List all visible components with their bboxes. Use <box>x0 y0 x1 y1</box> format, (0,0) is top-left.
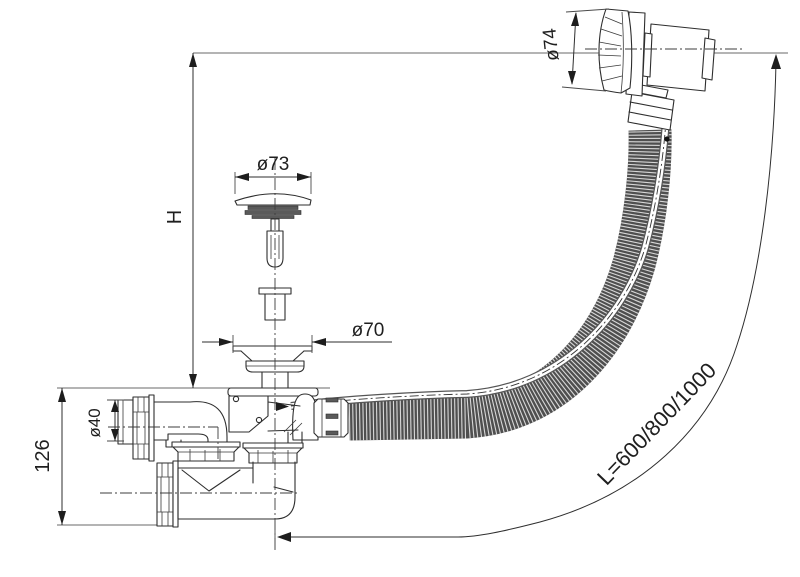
d70-extension-lines <box>233 335 312 353</box>
strainer <box>233 346 312 388</box>
overflow-body <box>647 24 709 91</box>
trap-height-dimension: 126 <box>32 388 66 525</box>
pop-up-plug <box>235 194 311 267</box>
cable-clip-dot <box>664 136 669 141</box>
reference-lines <box>57 53 788 525</box>
trap-nut-flange <box>173 461 178 527</box>
elbow-outer <box>154 402 227 446</box>
overflow-assembly <box>598 9 715 130</box>
left-hex-nut <box>173 447 239 461</box>
strainer-diameter-dimension: ø70 <box>202 320 392 353</box>
height-dimension: H <box>164 53 197 388</box>
hose-length-arc <box>285 62 776 537</box>
plug-seal-washer <box>252 216 294 219</box>
hose-length-arrow-left <box>277 532 291 542</box>
nut-thread-slot <box>326 414 338 419</box>
d73-arrow-right <box>297 173 311 181</box>
dim-label-h: H <box>164 210 186 224</box>
outlet-pipe-stub <box>118 400 133 444</box>
d70-arrow-right <box>219 338 233 346</box>
technical-drawing-canvas: H 126 ø40 ø73 ø70 ø74 <box>0 0 800 577</box>
hose-corrugation-ribs <box>349 130 650 419</box>
dim-label-d70: ø70 <box>352 320 385 341</box>
nut-thread-slot <box>326 398 338 402</box>
d74-arrow-down <box>568 71 576 85</box>
outlet-nut-flange <box>149 395 154 461</box>
dim-label-d40: ø40 <box>85 408 104 437</box>
d73-arrow-left <box>235 173 249 181</box>
hose-length-dimension: L=600/800/1000 <box>275 54 781 549</box>
bath-waste-overflow-drawing: H 126 ø40 ø73 ø70 ø74 <box>0 0 800 577</box>
trap-column-edges <box>253 462 295 497</box>
waste-trap-lower-body <box>157 461 295 527</box>
dim-label-d73: ø73 <box>257 154 290 175</box>
faceplate-screw-hole <box>233 396 238 401</box>
d70-arrow-left <box>312 338 326 346</box>
hose-length-arrow-up <box>771 54 781 69</box>
h-arrow-up <box>189 53 197 67</box>
cable-centerline <box>291 121 666 406</box>
right-hex-nut-flange <box>243 443 303 448</box>
d74-arrow-up <box>571 12 579 26</box>
dim-label-hose-length: L=600/800/1000 <box>592 358 721 490</box>
trap-outlet-elbow <box>275 497 295 519</box>
hose-body <box>349 130 650 419</box>
hose-connector <box>628 92 674 130</box>
dim-label-126: 126 <box>32 439 54 472</box>
plug-seal-washer <box>248 206 298 210</box>
plug-diameter-dimension: ø73 <box>235 154 311 194</box>
left-hex-nut-flange <box>172 442 240 447</box>
strainer-funnel-walls <box>241 351 304 361</box>
strainer-rim <box>233 346 312 351</box>
plug-seal-washer <box>245 211 301 215</box>
hex-nuts <box>172 442 303 463</box>
cable-outline <box>291 121 666 406</box>
plug-cap <box>235 194 311 205</box>
trap-cone-tip <box>274 487 293 492</box>
dim-126-arrow-up <box>58 388 66 402</box>
dim-label-d74: ø74 <box>539 27 563 62</box>
trap-shell <box>178 468 275 519</box>
flexible-hose <box>349 130 650 419</box>
outlet-ribbed-nut <box>133 397 149 459</box>
faceplate-screw-hole <box>256 417 261 422</box>
waste-trap-upper-body <box>228 388 348 443</box>
h-arrow-down <box>189 374 197 388</box>
cable-tube <box>291 121 666 406</box>
nut-thread-slot <box>326 431 338 435</box>
trap-inner-cone <box>182 470 240 491</box>
dim-126-arrow-down <box>58 511 66 525</box>
trap-ribbed-nut <box>157 463 173 526</box>
